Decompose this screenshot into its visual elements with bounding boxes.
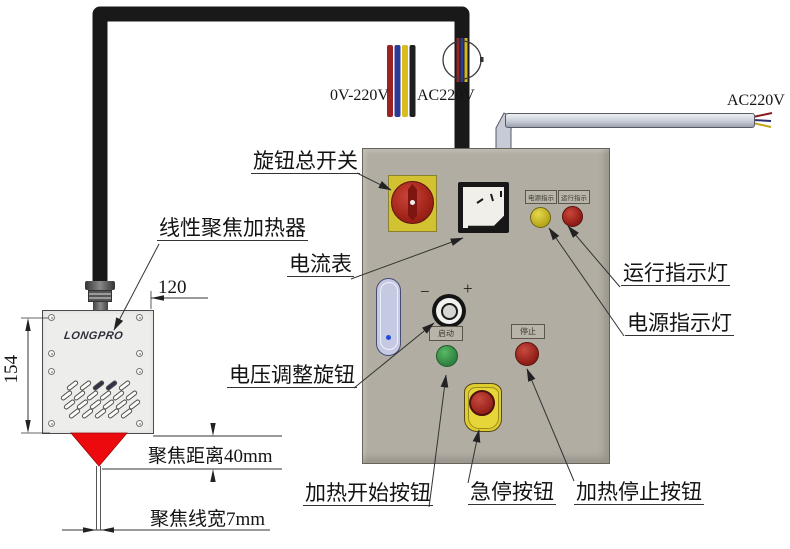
magnifier-nub bbox=[480, 57, 484, 62]
ammeter-tick-2 bbox=[491, 194, 493, 201]
dim40-arrow-down bbox=[210, 423, 215, 436]
leader-estop bbox=[468, 430, 479, 483]
focus-cone bbox=[71, 433, 127, 466]
dim7-arrow-right bbox=[83, 527, 96, 532]
heater-screw bbox=[136, 368, 143, 375]
leader-ammeter bbox=[351, 238, 463, 279]
heater-screw bbox=[136, 314, 143, 321]
leader-voltage-knob bbox=[354, 323, 434, 388]
leader-heat-start-elbow bbox=[429, 477, 433, 507]
dimension-graphics bbox=[21, 291, 282, 533]
leader-run-light bbox=[568, 226, 620, 287]
dim40-arrow-up bbox=[210, 469, 215, 482]
heater-screw bbox=[136, 420, 143, 427]
heater-screw bbox=[136, 350, 143, 357]
heater-screw bbox=[48, 314, 55, 321]
dim120-arrow bbox=[151, 295, 164, 300]
dim154-arrow-down bbox=[25, 420, 30, 433]
leader-heat-stop bbox=[527, 369, 574, 481]
dim154-arrow-up bbox=[25, 318, 30, 331]
heater-screw bbox=[48, 368, 55, 375]
annotation-layer bbox=[0, 0, 790, 549]
ammeter-tick-1 bbox=[477, 199, 483, 203]
diagram-canvas: 电源指示 运行指示 − + 启动 停止 LONGPRO 旋钮总开关 线性聚焦加热… bbox=[0, 0, 790, 549]
leader-power-light bbox=[549, 228, 624, 336]
ammeter-marks bbox=[468, 191, 501, 227]
heater-screw bbox=[48, 420, 55, 427]
dim7-arrow-left bbox=[101, 527, 114, 532]
leader-lines bbox=[114, 173, 624, 507]
cable-cross-section-magnifier bbox=[443, 41, 481, 79]
leader-heat-start bbox=[433, 375, 446, 477]
leader-rotary-switch bbox=[357, 173, 391, 190]
heater-screw bbox=[48, 350, 55, 357]
